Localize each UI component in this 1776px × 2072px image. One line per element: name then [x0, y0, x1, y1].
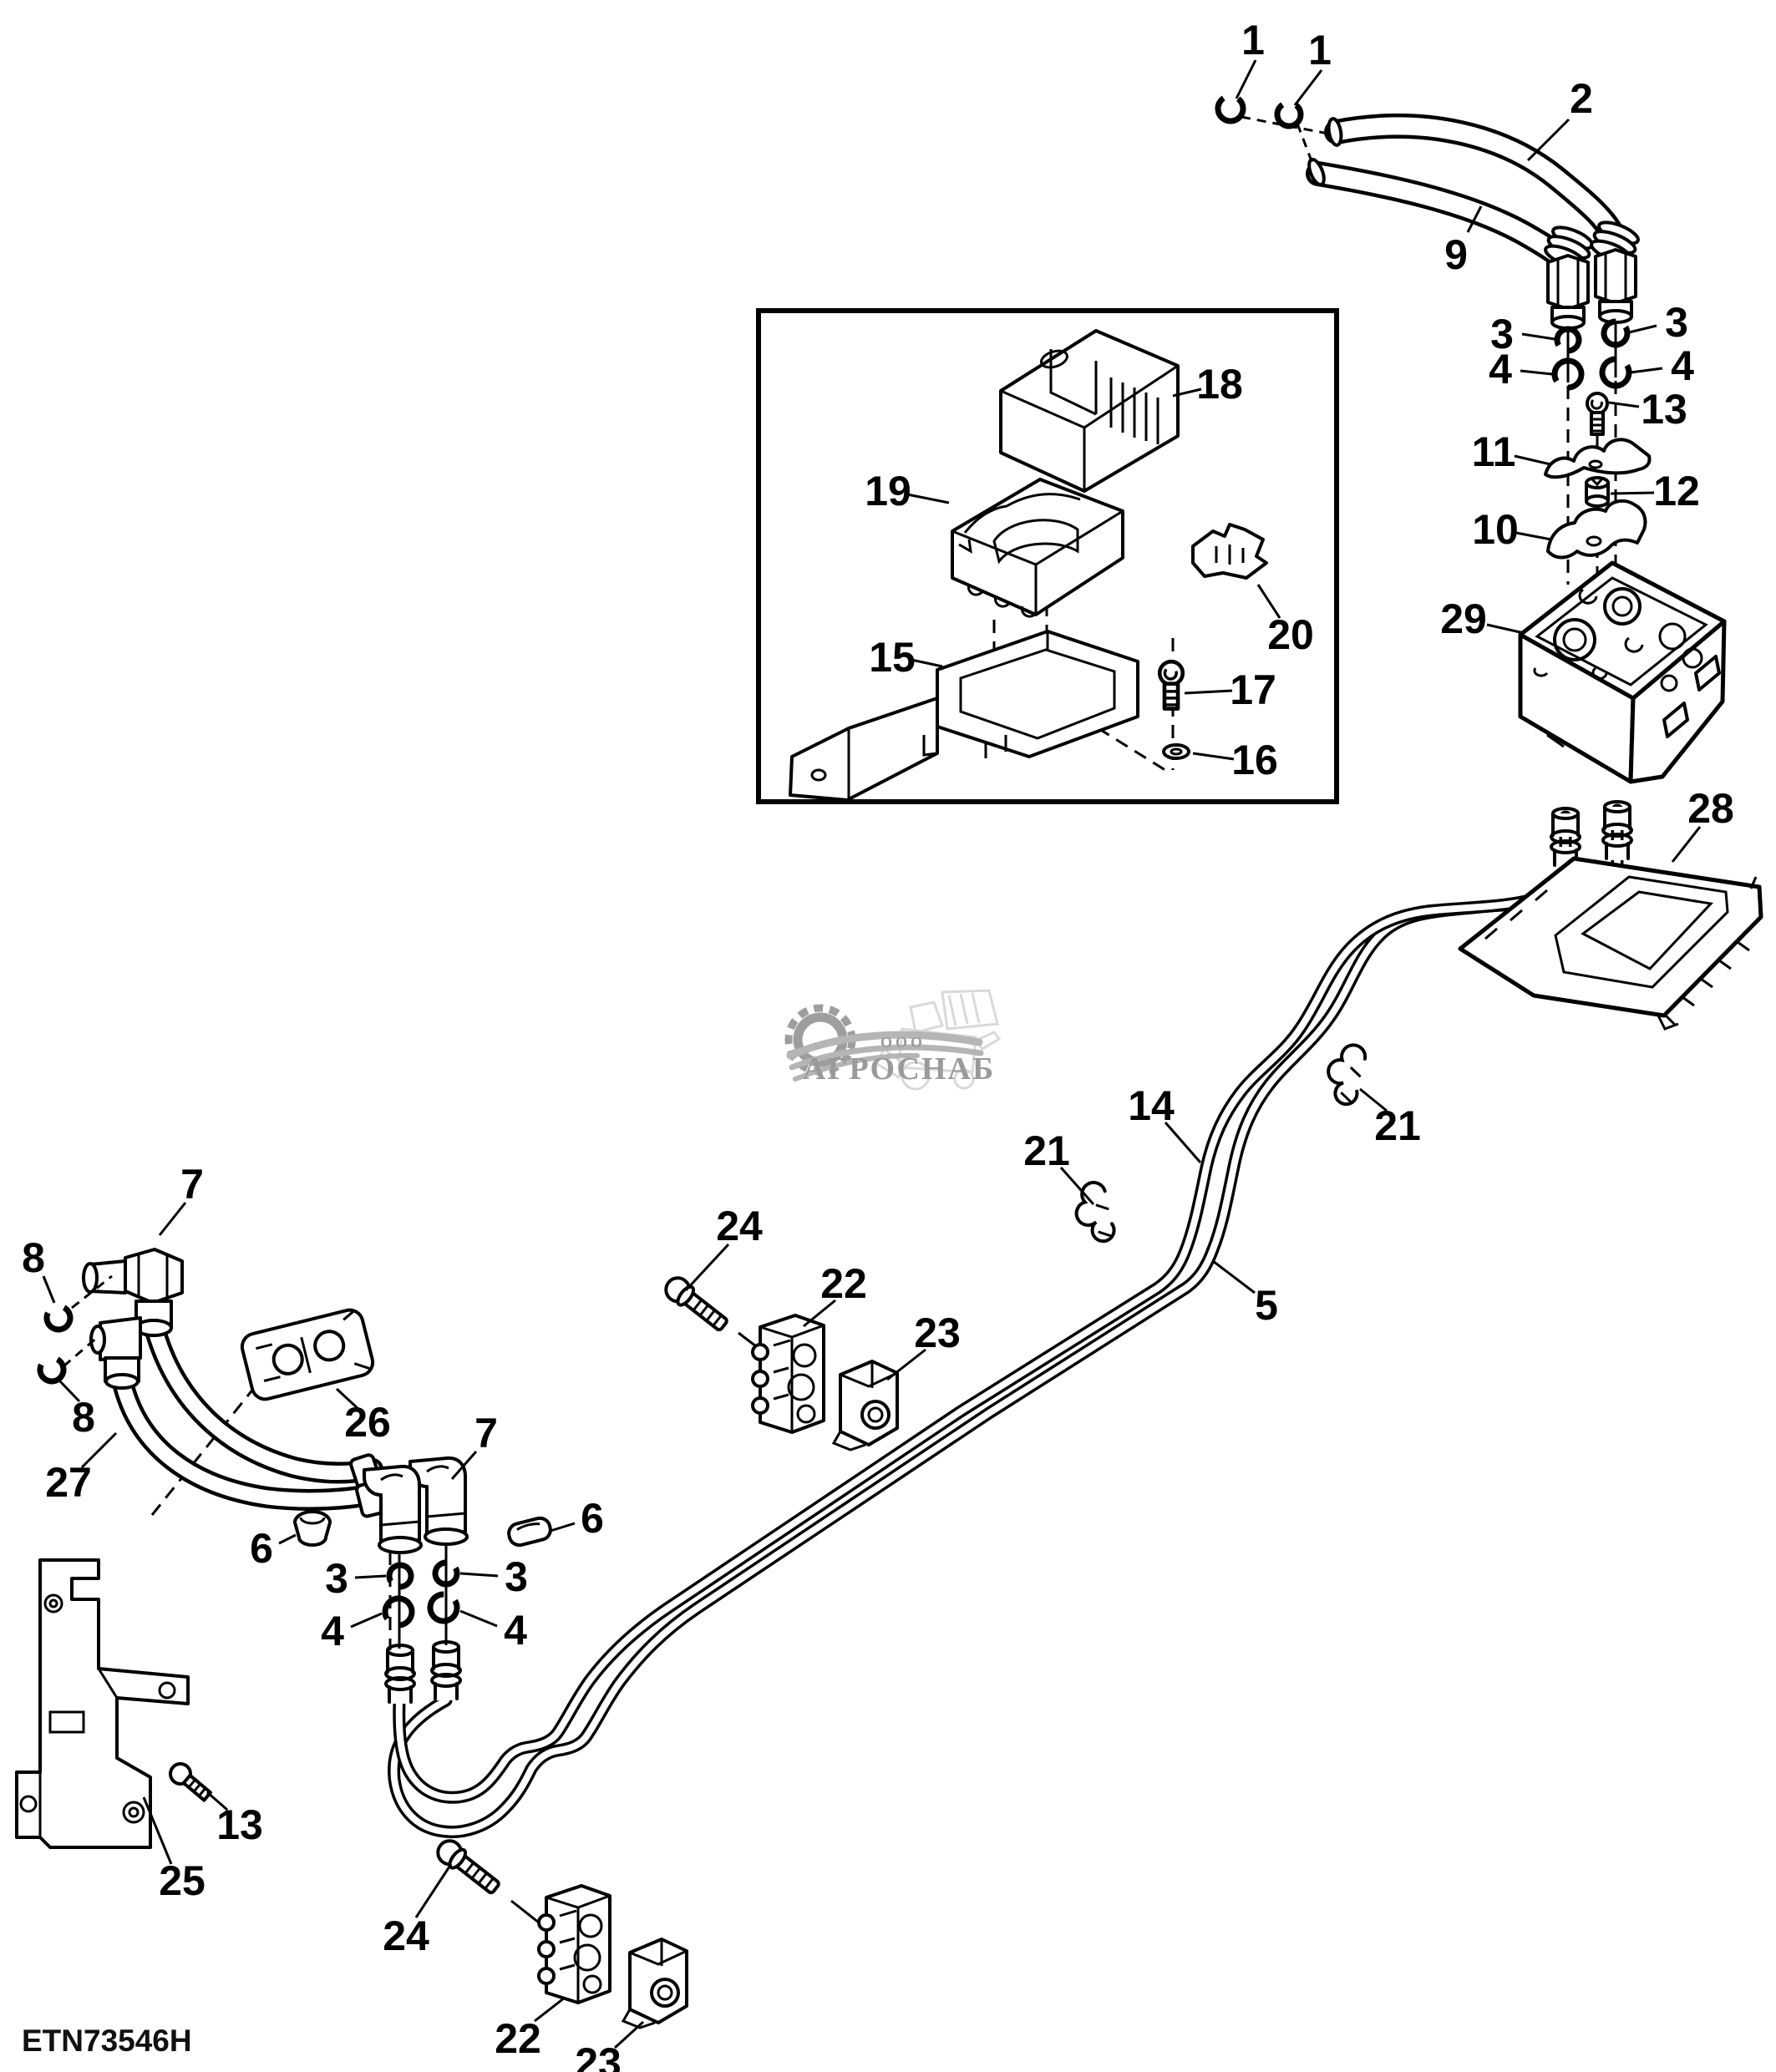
leader-line-13	[1609, 403, 1639, 407]
washer-16	[1164, 745, 1189, 758]
callout-label-23: 23	[575, 2039, 622, 2072]
callout-label-3: 3	[1665, 299, 1688, 346]
leader-line-3	[1629, 326, 1657, 332]
leader-line-1	[1236, 60, 1256, 99]
callout-label-24: 24	[383, 1912, 429, 1959]
hose-nut	[1548, 256, 1588, 328]
parts-diagram-canvas: ООО АГРОСНАБ	[0, 0, 1776, 2072]
callout-label-6: 6	[250, 1525, 273, 1572]
callout-label-29: 29	[1440, 595, 1487, 642]
callout-label-1: 1	[1308, 27, 1332, 73]
callout-label-21: 21	[1023, 1127, 1070, 1174]
hose-sleeve	[386, 1645, 414, 1704]
clamp-22	[539, 1886, 610, 2003]
callout-label-4: 4	[1489, 346, 1512, 393]
leader-line-1	[1295, 70, 1322, 105]
leader-line-29	[1487, 625, 1524, 633]
screw-13-bracket	[166, 1760, 214, 1804]
cap-6	[295, 1512, 330, 1545]
leader-line-2	[1528, 119, 1569, 160]
bolt-24	[434, 1836, 503, 1898]
plug-6	[507, 1516, 553, 1547]
callout-label-13: 13	[1641, 386, 1687, 433]
callout-label-16: 16	[1231, 737, 1278, 783]
screw-17	[1159, 661, 1183, 708]
callout-label-8: 8	[22, 1234, 45, 1281]
valve-block-29	[1520, 563, 1724, 782]
watermark-name: АГРОСНАБ	[803, 1051, 995, 1087]
snap-ring-8	[36, 1354, 68, 1386]
bracket-25	[17, 1560, 188, 1847]
callout-label-20: 20	[1267, 611, 1314, 658]
leader-line-11	[1515, 456, 1550, 464]
clip-21	[1071, 1180, 1116, 1245]
leader-line-4	[1631, 368, 1662, 372]
clamp-23	[623, 1939, 687, 2028]
bolt-24	[662, 1274, 731, 1335]
callout-label-10: 10	[1472, 506, 1519, 553]
watermark: ООО АГРОСНАБ	[789, 990, 999, 1089]
hose-nut	[1596, 250, 1636, 322]
inset-detail-box	[759, 311, 1337, 802]
leader-line-3	[355, 1576, 386, 1578]
bushing-12	[1586, 478, 1608, 506]
leader-line-4	[460, 1611, 497, 1626]
snap-ring-8	[43, 1302, 74, 1334]
callout-label-3: 3	[325, 1555, 348, 1602]
tube-line-5	[394, 810, 1617, 1832]
callout-label-21: 21	[1374, 1102, 1421, 1149]
callout-label-12: 12	[1653, 468, 1700, 514]
clips-1	[1213, 91, 1328, 165]
callout-label-2: 2	[1570, 75, 1593, 122]
hose-sleeve	[432, 1642, 460, 1700]
leader-line-6	[551, 1523, 575, 1531]
leader-line-10	[1516, 533, 1551, 540]
tube-line-14	[399, 817, 1565, 1797]
leader-line-3	[460, 1573, 498, 1576]
callout-label-15: 15	[869, 634, 916, 681]
leader-line-4	[1520, 371, 1552, 374]
callout-label-7: 7	[474, 1410, 498, 1456]
callout-label-4: 4	[1671, 342, 1694, 389]
callout-label-22: 22	[495, 2015, 541, 2062]
callout-label-28: 28	[1687, 785, 1734, 832]
callout-label-7: 7	[180, 1161, 204, 1208]
clamp-10	[1548, 501, 1646, 558]
callout-label-1: 1	[1241, 17, 1265, 63]
leader-line-24	[416, 1864, 451, 1917]
callout-label-27: 27	[45, 1459, 92, 1506]
drawing-code: ETN73546H	[22, 2024, 192, 2058]
elbow-fitting-7-left-lower	[91, 1318, 140, 1388]
mount-tray-28	[1460, 859, 1761, 1029]
leader-line-5	[1213, 1261, 1255, 1293]
callout-label-8: 8	[72, 1394, 95, 1441]
callout-label-6: 6	[581, 1495, 604, 1542]
screw-13	[1587, 393, 1607, 434]
callout-label-17: 17	[1230, 666, 1276, 713]
leader-line-3	[1522, 334, 1555, 339]
o-ring-4	[425, 1589, 462, 1626]
clamp-26	[240, 1307, 376, 1401]
callout-label-11: 11	[1472, 428, 1516, 475]
leader-line-6	[279, 1535, 296, 1543]
clamp-22	[753, 1315, 824, 1432]
watermark-prefix: ООО	[880, 1034, 926, 1051]
diagram-page: ООО АГРОСНАБ	[0, 0, 1776, 2072]
clip-21	[1322, 1041, 1368, 1107]
leader-line-24	[686, 1244, 728, 1290]
callout-label-19: 19	[865, 468, 911, 514]
callout-label-13: 13	[216, 1801, 263, 1848]
fitting-stack-right	[1545, 317, 1650, 585]
callout-label-23: 23	[914, 1310, 961, 1356]
callout-label-9: 9	[1444, 231, 1468, 278]
leader-line-28	[1672, 827, 1700, 862]
leader-line-12	[1611, 493, 1654, 494]
leader-line-8	[43, 1276, 54, 1303]
clamp-23	[834, 1361, 897, 1450]
callout-label-14: 14	[1128, 1082, 1175, 1129]
callout-label-18: 18	[1196, 361, 1243, 408]
callout-label-22: 22	[820, 1260, 867, 1307]
callout-label-24: 24	[716, 1203, 763, 1249]
callout-label-3: 3	[505, 1553, 528, 1600]
callout-label-4: 4	[321, 1608, 344, 1654]
callout-label-26: 26	[344, 1399, 391, 1446]
leader-line-4	[351, 1614, 382, 1627]
callout-label-4: 4	[504, 1607, 527, 1654]
callout-label-25: 25	[159, 1857, 206, 1904]
callout-label-5: 5	[1255, 1282, 1278, 1329]
